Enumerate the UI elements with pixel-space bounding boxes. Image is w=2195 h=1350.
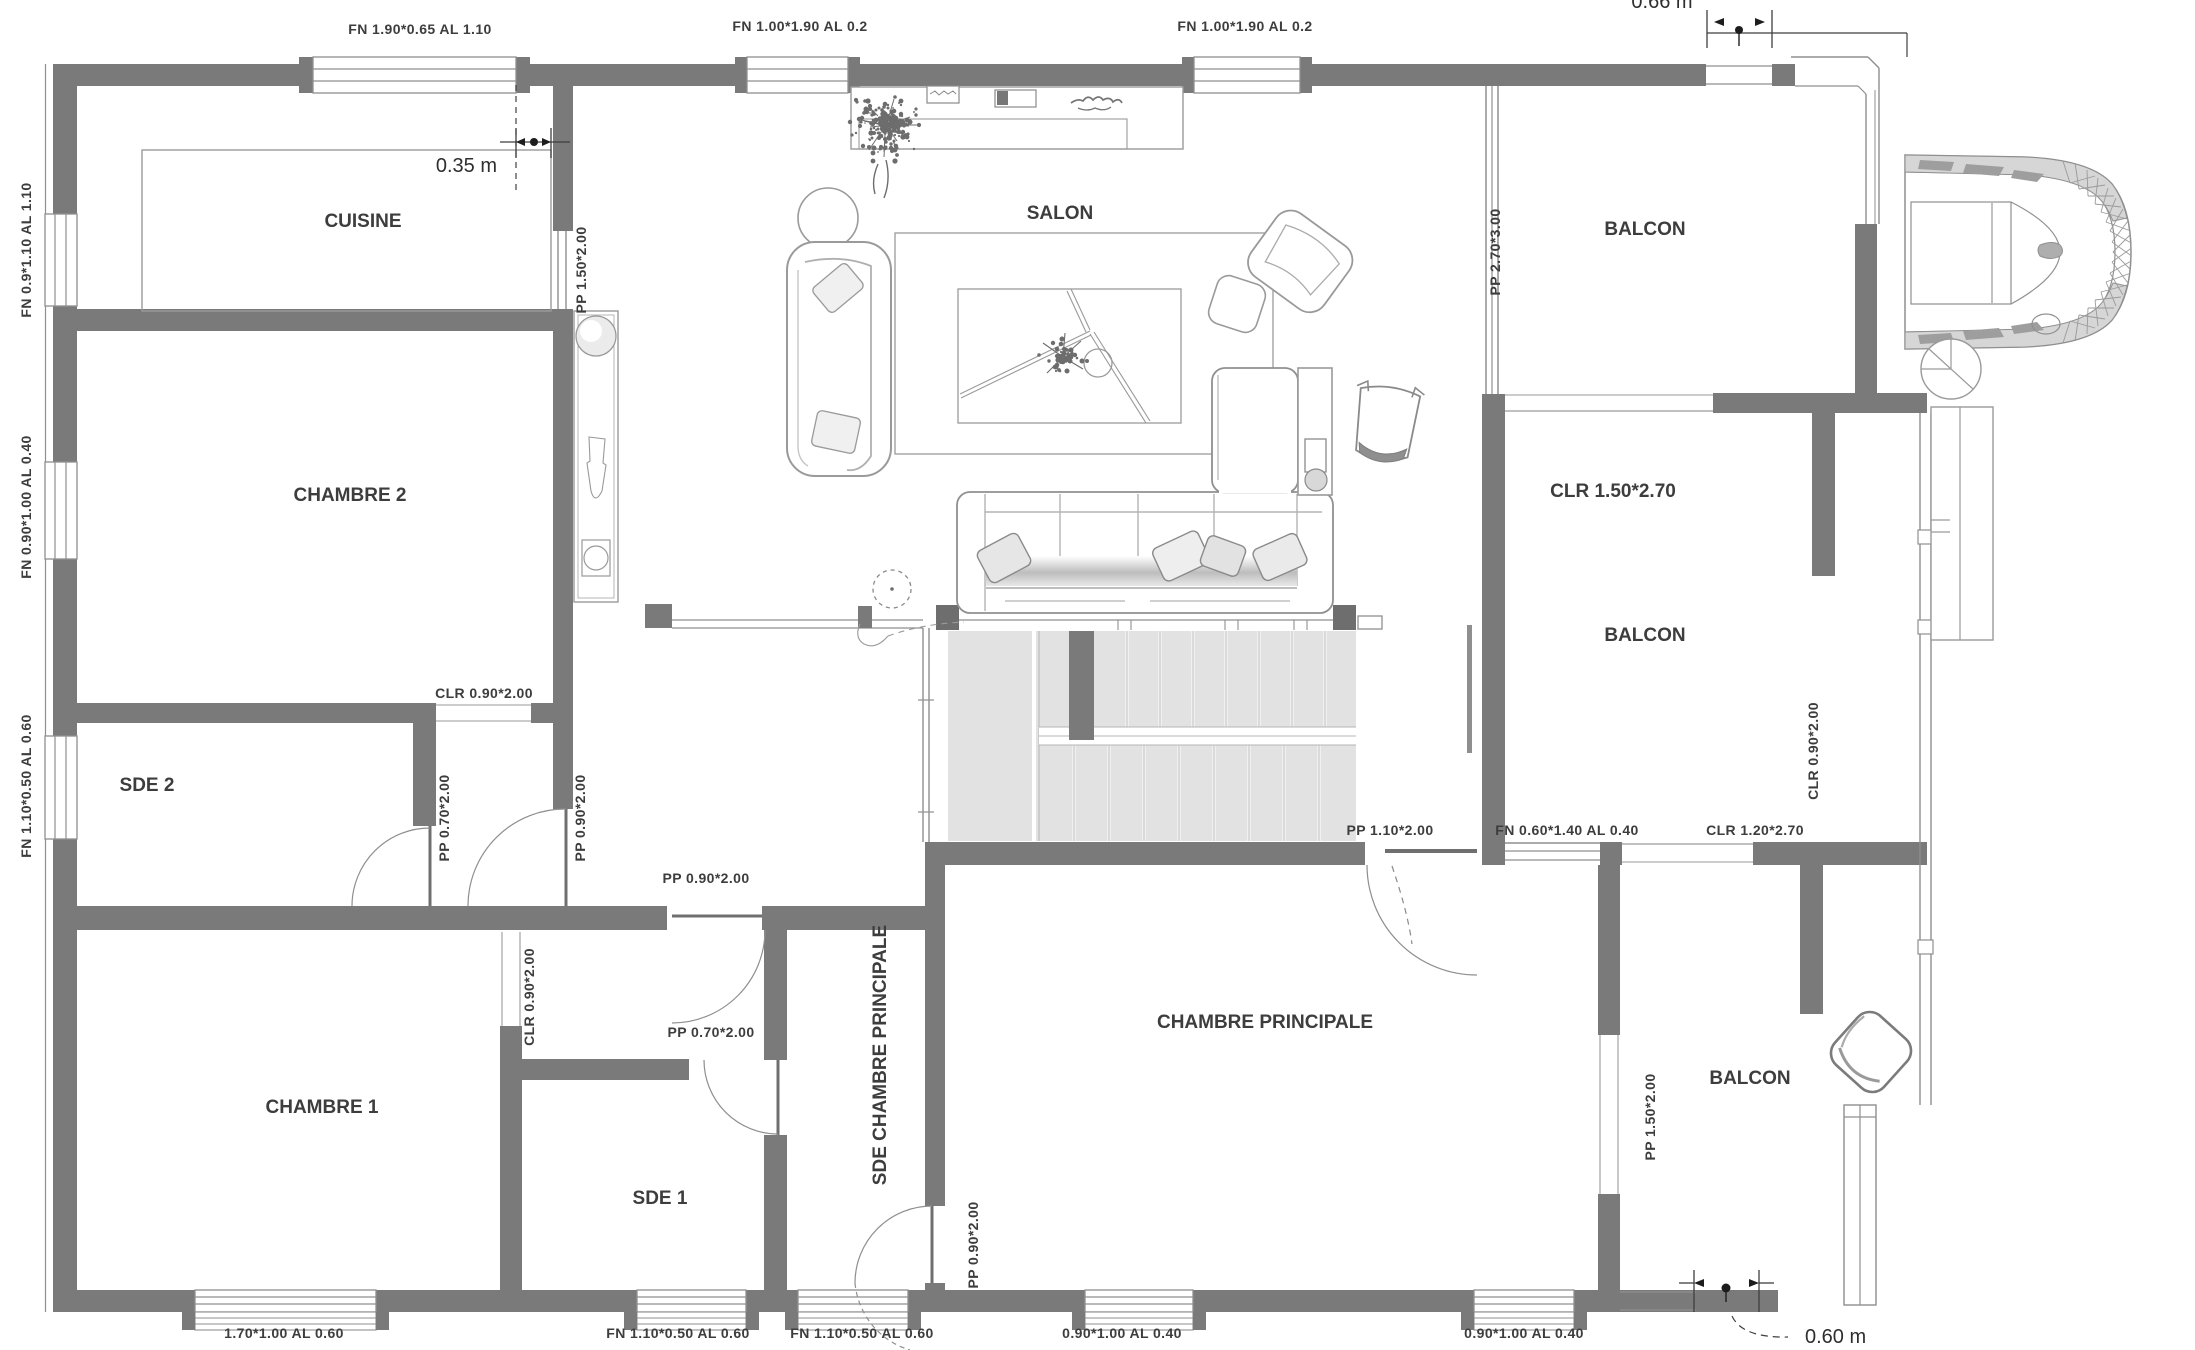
svg-text:CLR 0.90*2.00: CLR 0.90*2.00	[435, 685, 533, 701]
svg-text:PP 0.90*2.00: PP 0.90*2.00	[965, 1201, 981, 1288]
svg-text:SDE CHAMBRE PRINCIPALE: SDE CHAMBRE PRINCIPALE	[870, 925, 891, 1185]
svg-text:0.90*1.00 AL 0.40: 0.90*1.00 AL 0.40	[1464, 1325, 1584, 1341]
svg-text:PP 0.70*2.00: PP 0.70*2.00	[667, 1024, 754, 1040]
svg-text:FN 1.90*0.65 AL 1.10: FN 1.90*0.65 AL 1.10	[348, 21, 491, 37]
svg-text:CLR 1.20*2.70: CLR 1.20*2.70	[1706, 822, 1804, 838]
svg-text:FN 0.90*1.00 AL 0.40: FN 0.90*1.00 AL 0.40	[18, 435, 34, 578]
svg-text:FN 0.60*1.40 AL 0.40: FN 0.60*1.40 AL 0.40	[1495, 822, 1638, 838]
svg-text:CHAMBRE 1: CHAMBRE 1	[266, 1097, 379, 1118]
svg-text:0.66 m: 0.66 m	[1631, 0, 1692, 13]
svg-text:CUISINE: CUISINE	[324, 211, 401, 232]
svg-text:1.70*1.00 AL 0.60: 1.70*1.00 AL 0.60	[224, 1325, 344, 1341]
svg-text:PP 1.50*2.00: PP 1.50*2.00	[573, 226, 589, 313]
svg-text:FN 1.00*1.90 AL 0.2: FN 1.00*1.90 AL 0.2	[732, 18, 867, 34]
svg-text:PP 1.10*2.00: PP 1.10*2.00	[1346, 822, 1433, 838]
svg-text:FN 1.10*0.50 AL 0.60: FN 1.10*0.50 AL 0.60	[18, 714, 34, 857]
svg-text:FN 1.10*0.50 AL 0.60: FN 1.10*0.50 AL 0.60	[790, 1325, 933, 1341]
svg-text:BALCON: BALCON	[1709, 1068, 1790, 1089]
svg-text:CHAMBRE 2: CHAMBRE 2	[294, 485, 407, 506]
svg-text:0.60 m: 0.60 m	[1805, 1326, 1866, 1348]
svg-text:CHAMBRE PRINCIPALE: CHAMBRE PRINCIPALE	[1157, 1012, 1373, 1033]
svg-text:FN 1.10*0.50 AL 0.60: FN 1.10*0.50 AL 0.60	[606, 1325, 749, 1341]
svg-text:0.90*1.00 AL 0.40: 0.90*1.00 AL 0.40	[1062, 1325, 1182, 1341]
svg-text:PP 1.50*2.00: PP 1.50*2.00	[1642, 1073, 1658, 1160]
svg-text:BALCON: BALCON	[1604, 625, 1685, 646]
svg-text:CLR 0.90*2.00: CLR 0.90*2.00	[1805, 702, 1821, 800]
svg-text:PP 0.70*2.00: PP 0.70*2.00	[436, 774, 452, 861]
svg-text:FN 0.9*1.10 AL 1.10: FN 0.9*1.10 AL 1.10	[18, 182, 34, 317]
svg-text:CLR 0.90*2.00: CLR 0.90*2.00	[521, 948, 537, 1046]
svg-text:PP 0.90*2.00: PP 0.90*2.00	[662, 870, 749, 886]
svg-text:CLR 1.50*2.70: CLR 1.50*2.70	[1550, 481, 1676, 502]
svg-text:FN 1.00*1.90 AL 0.2: FN 1.00*1.90 AL 0.2	[1177, 18, 1312, 34]
svg-text:PP 2.70*3.00: PP 2.70*3.00	[1487, 208, 1503, 295]
svg-text:SDE 2: SDE 2	[120, 775, 175, 796]
svg-text:0.35 m: 0.35 m	[436, 155, 497, 177]
svg-text:PP 0.90*2.00: PP 0.90*2.00	[572, 774, 588, 861]
svg-text:SDE 1: SDE 1	[633, 1188, 688, 1209]
svg-text:BALCON: BALCON	[1604, 219, 1685, 240]
svg-text:SALON: SALON	[1027, 203, 1094, 224]
